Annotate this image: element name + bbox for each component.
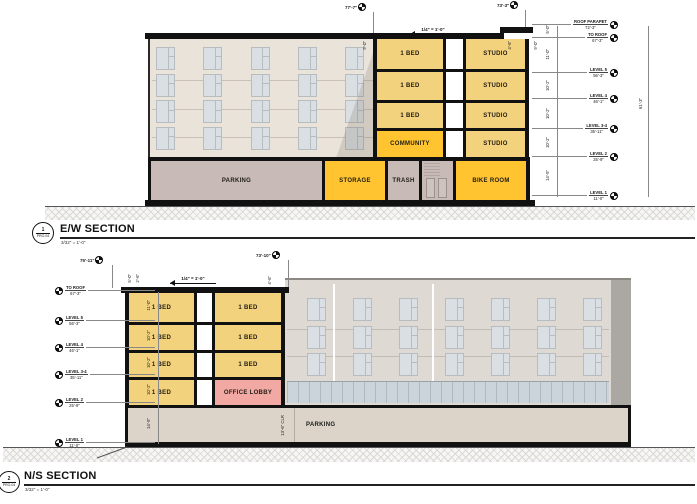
window: [353, 353, 372, 376]
level-marker: LEVEL 4 46'-1": [55, 342, 155, 354]
dimension-text: 10'-2": [147, 384, 151, 395]
level-marker: LEVEL 2 25'-9": [55, 397, 155, 409]
room-label: OFFICE LOBBY: [224, 390, 272, 396]
window: [491, 353, 510, 376]
room-label: PARKING: [306, 422, 335, 428]
dimension-text: 5'-0": [128, 274, 132, 283]
section-title: N/S SECTION: [24, 470, 97, 482]
dimension-text: 10'-2": [147, 330, 151, 341]
leader-line: [86, 347, 155, 348]
room-1-bed: 1 BED: [215, 353, 281, 377]
ns-section-drawing: 1 BED 1 BED 1 BED 1 BED 1 BED 1 BED 1 BE…: [0, 0, 697, 504]
wall-line: [294, 408, 295, 442]
storefront-glazing: [287, 381, 609, 403]
window: [399, 326, 418, 349]
window: [307, 298, 326, 321]
target-icon: [272, 251, 280, 259]
slope-label: 1/4" = 1'-0": [181, 276, 204, 281]
dimension-line: [158, 292, 159, 444]
room-parking: 13'-6" CLR PARKING: [125, 405, 631, 447]
target-icon: [55, 439, 63, 447]
room-label: 1 BED: [152, 362, 171, 368]
room-label: 1 BED: [152, 335, 171, 341]
level-elevation: 56'-3": [69, 321, 80, 326]
window: [537, 326, 556, 349]
level-elevation: 25'-9": [69, 403, 80, 408]
window: [353, 298, 372, 321]
title-rule: [24, 484, 695, 486]
window: [353, 326, 372, 349]
window: [445, 353, 464, 376]
detail-number: 2: [2, 476, 16, 483]
window: [399, 353, 418, 376]
dimension-text: 4'-6": [268, 276, 272, 285]
stair-shaft: [197, 353, 212, 377]
level-marker: LEVEL 5 56'-3": [55, 315, 155, 327]
window: [537, 298, 556, 321]
stair-shaft: [197, 293, 212, 322]
room-1-bed: 1 BED: [215, 293, 281, 322]
room-office-lobby: OFFICE LOBBY: [215, 380, 281, 405]
level-marker: LEVEL 3-4 35'-11": [55, 369, 155, 381]
elevation-marker: 75'-11": [80, 256, 103, 264]
window: [307, 353, 326, 376]
level-marker: LEVEL 1 11'-0": [55, 437, 155, 449]
leader-line: [86, 442, 155, 443]
target-icon: [55, 399, 63, 407]
dimension-text: 10'-2": [147, 357, 151, 368]
target-icon: [55, 344, 63, 352]
level-elevation: 35'-11": [70, 375, 83, 380]
level-marker: TO ROOF 67'-3": [55, 285, 155, 297]
window: [537, 353, 556, 376]
dimension-text: 11'-0": [147, 300, 151, 311]
window: [399, 298, 418, 321]
side-wall: [611, 280, 631, 405]
room-label: 1 BED: [238, 335, 257, 341]
window: [583, 326, 602, 349]
leader-line: [88, 290, 155, 291]
scale-label: 3/32" = 1'-0": [25, 487, 49, 492]
target-icon: [55, 371, 63, 379]
stair-shaft: [197, 380, 212, 405]
window: [445, 298, 464, 321]
window: [491, 326, 510, 349]
level-elevation: 67'-3": [70, 291, 81, 296]
sheet-number: PRO.04: [3, 483, 15, 488]
window: [583, 353, 602, 376]
window: [583, 298, 602, 321]
sheet-reference-bubble: 2 PRO.04: [0, 471, 20, 493]
stair-shaft: [197, 325, 212, 350]
window: [307, 326, 326, 349]
leader-line: [86, 320, 155, 321]
window: [445, 326, 464, 349]
window-grid: [307, 298, 602, 376]
leader-line: [288, 260, 289, 287]
slope-arrow-icon: [170, 283, 216, 284]
room-label: 1 BED: [152, 305, 171, 311]
dimension-text: 73'-10": [256, 253, 271, 258]
dimension-text: 14'-9": [147, 418, 151, 429]
clearance-dimension: 13'-6" CLR: [281, 415, 285, 436]
room-label: 1 BED: [238, 362, 257, 368]
leader-line: [86, 402, 155, 403]
level-elevation: 46'-1": [69, 348, 80, 353]
elevation-marker: 73'-10": [256, 251, 280, 259]
level-elevation: 11'-0": [69, 443, 79, 448]
room-label: 1 BED: [152, 390, 171, 396]
leader-line: [90, 374, 155, 375]
target-icon: [55, 317, 63, 325]
dimension-text: 75'-11": [80, 258, 94, 263]
drawing-sheet: 1 BED STUDIO 1 BED STUDIO 1 BED STUDIO C…: [0, 0, 697, 504]
room-label: 1 BED: [238, 305, 257, 311]
target-icon: [95, 256, 103, 264]
room-1-bed: 1 BED: [215, 325, 281, 350]
window: [491, 298, 510, 321]
dimension-text: 2'-6": [136, 274, 140, 283]
target-icon: [55, 287, 63, 295]
slope-annotation: 1/4" = 1'-0": [170, 276, 216, 284]
